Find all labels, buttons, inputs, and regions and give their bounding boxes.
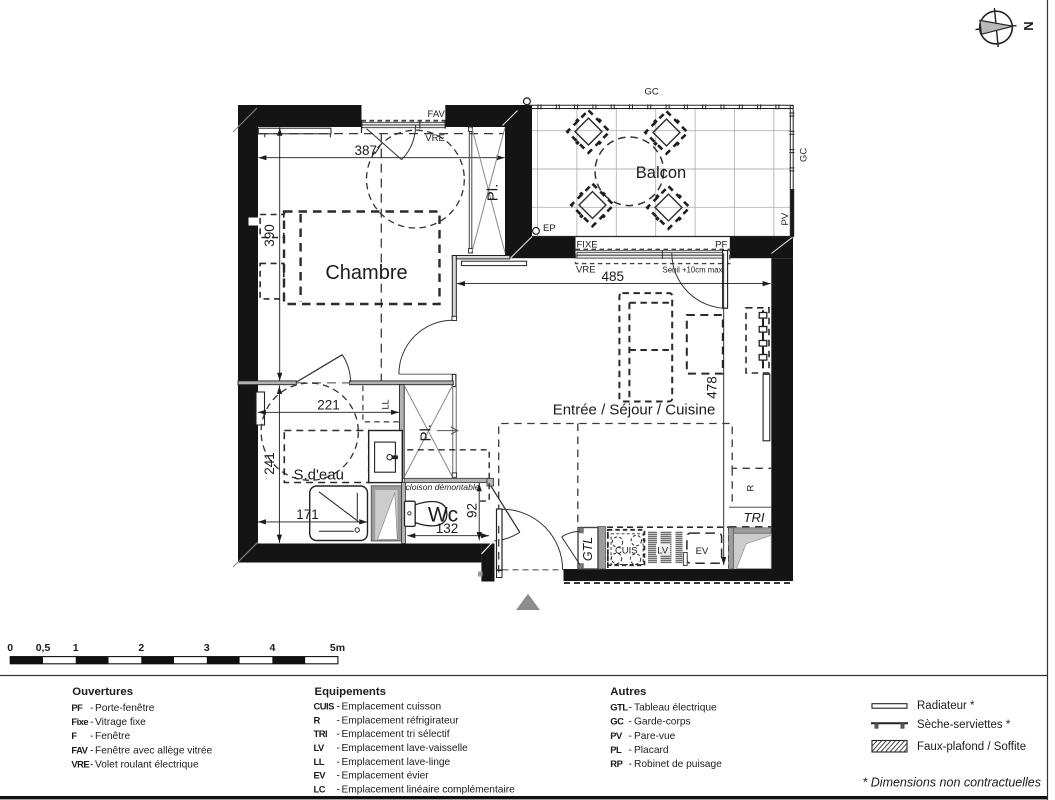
svg-text:EV: EV (696, 546, 709, 557)
svg-text:171: 171 (296, 507, 319, 522)
svg-text:Entrée / Séjour / Cuisine: Entrée / Séjour / Cuisine (553, 402, 716, 419)
svg-text:387: 387 (355, 143, 378, 158)
svg-text:478: 478 (705, 376, 720, 399)
svg-text:221: 221 (317, 398, 340, 413)
svg-text:-: - (629, 717, 632, 728)
svg-text:Emplacement lave-vaisselle: Emplacement lave-vaisselle (342, 743, 469, 754)
svg-text:-: - (90, 731, 93, 742)
svg-text:-: - (337, 702, 340, 713)
svg-text:CUIS: CUIS (314, 701, 335, 712)
svg-text:RP: RP (610, 758, 622, 769)
svg-text:EV: EV (314, 770, 327, 781)
svg-text:* Dimensions non contractuelle: * Dimensions non contractuelles (862, 776, 1041, 790)
svg-text:Porte-fenêtre: Porte-fenêtre (95, 703, 155, 714)
svg-text:Emplacement réfrigirateur: Emplacement réfrigirateur (342, 715, 460, 726)
svg-text:FAV: FAV (428, 109, 446, 120)
svg-text:-: - (90, 745, 93, 756)
svg-text:Emplacement cuisson: Emplacement cuisson (342, 702, 442, 713)
svg-text:TRI: TRI (314, 728, 328, 739)
svg-text:LL: LL (381, 399, 391, 409)
svg-text:Fenêtre avec allège vitrée: Fenêtre avec allège vitrée (95, 745, 213, 756)
svg-text:GC: GC (645, 87, 659, 98)
svg-text:Seuil +10cm maxi: Seuil +10cm maxi (663, 266, 725, 275)
svg-text:LV: LV (657, 546, 669, 557)
svg-text:Pl.: Pl. (485, 184, 502, 202)
svg-text:R: R (746, 484, 757, 491)
svg-text:PL: PL (610, 744, 622, 755)
svg-text:Volet roulant électrique: Volet roulant électrique (95, 759, 199, 770)
svg-text:S.d'eau: S.d'eau (294, 467, 344, 484)
svg-text:CUIS: CUIS (615, 546, 638, 557)
svg-text:0: 0 (7, 642, 13, 654)
svg-text:-: - (629, 702, 632, 713)
svg-text:FAV: FAV (71, 744, 88, 755)
svg-text:241: 241 (262, 452, 277, 475)
svg-text:Garde-corps: Garde-corps (634, 717, 691, 728)
svg-text:0,5: 0,5 (36, 642, 51, 654)
svg-text:Autres: Autres (610, 686, 646, 698)
svg-text:-: - (90, 703, 93, 714)
svg-text:-: - (337, 743, 340, 754)
svg-text:LC: LC (314, 783, 326, 794)
svg-text:N: N (1021, 21, 1036, 30)
svg-text:Pare-vue: Pare-vue (634, 731, 676, 742)
svg-text:Fenêtre: Fenêtre (95, 731, 130, 742)
svg-text:Placard: Placard (634, 745, 669, 756)
svg-text:390: 390 (262, 224, 277, 247)
svg-text:-: - (629, 759, 632, 770)
svg-text:LV: LV (314, 742, 326, 753)
svg-text:-: - (90, 717, 93, 728)
svg-text:cloison démontable: cloison démontable (406, 482, 480, 492)
svg-text:-: - (337, 784, 340, 795)
svg-text:Sèche-serviettes *: Sèche-serviettes * (917, 719, 1011, 731)
svg-text:-: - (90, 759, 93, 770)
svg-text:Emplacement évier: Emplacement évier (342, 771, 430, 782)
svg-text:1: 1 (73, 642, 79, 654)
svg-text:Radiateur *: Radiateur * (917, 700, 975, 712)
svg-text:-: - (337, 715, 340, 726)
svg-text:Vitrage fixe: Vitrage fixe (95, 717, 146, 728)
svg-text:Equipements: Equipements (315, 686, 387, 698)
svg-text:Emplacement lave-linge: Emplacement lave-linge (342, 757, 451, 768)
svg-text:Pl.: Pl. (418, 424, 435, 442)
svg-text:GC: GC (799, 148, 810, 162)
svg-text:EP: EP (543, 223, 556, 234)
svg-text:F: F (71, 730, 77, 741)
svg-text:4: 4 (269, 642, 275, 654)
svg-text:Emplacement linéaire complémen: Emplacement linéaire complémentaire (342, 784, 516, 795)
svg-text:VRE: VRE (576, 265, 596, 276)
svg-text:-: - (629, 745, 632, 756)
svg-text:PF: PF (71, 702, 83, 713)
svg-text:Chambre: Chambre (325, 262, 407, 284)
svg-text:LL: LL (314, 756, 325, 767)
svg-text:92: 92 (465, 503, 480, 518)
svg-text:485: 485 (602, 269, 625, 284)
svg-text:Robinet de puisage: Robinet de puisage (634, 759, 722, 770)
svg-text:Ouvertures: Ouvertures (72, 686, 133, 698)
svg-text:5m: 5m (330, 642, 345, 654)
svg-text:3: 3 (204, 642, 210, 654)
svg-text:VRE: VRE (71, 758, 89, 769)
svg-text:Balcon: Balcon (636, 164, 686, 182)
svg-text:-: - (337, 771, 340, 782)
svg-text:-: - (337, 757, 340, 768)
svg-text:GC: GC (610, 716, 624, 727)
svg-text:GTL: GTL (581, 537, 595, 561)
svg-text:2: 2 (138, 642, 144, 654)
svg-text:R: R (314, 714, 321, 725)
svg-text:PV: PV (610, 730, 623, 741)
svg-text:PV: PV (780, 212, 791, 225)
svg-text:GTL: GTL (610, 701, 628, 712)
svg-text:Faux-plafond / Soffite: Faux-plafond / Soffite (917, 741, 1026, 753)
svg-text:Tableau électrique: Tableau électrique (634, 702, 717, 713)
svg-text:132: 132 (436, 521, 459, 536)
svg-text:-: - (337, 729, 340, 740)
svg-text:-: - (629, 731, 632, 742)
svg-text:Emplacement tri sélectif: Emplacement tri sélectif (342, 729, 450, 740)
svg-text:Fixe: Fixe (71, 716, 88, 727)
svg-text:TRI: TRI (744, 510, 765, 525)
